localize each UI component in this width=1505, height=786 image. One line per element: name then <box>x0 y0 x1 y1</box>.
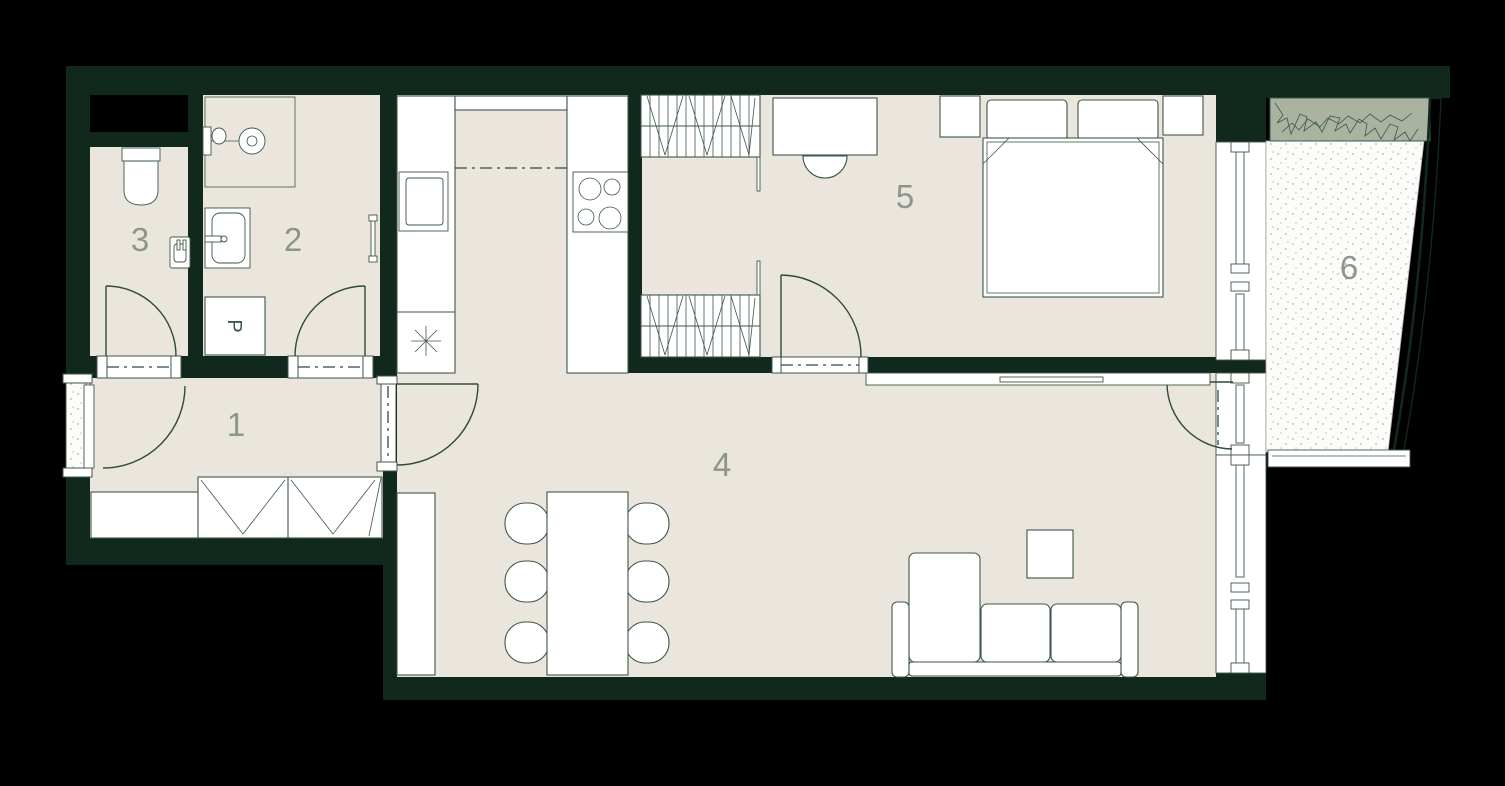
wardrobe-bottom <box>641 295 760 357</box>
entrance-door-leaf <box>84 385 94 468</box>
sofa-seat <box>1051 604 1121 662</box>
cooktop <box>573 172 628 232</box>
living-bottom-wall <box>383 677 1266 700</box>
hall-wardrobe <box>198 477 382 538</box>
left-wall-upper <box>66 95 90 374</box>
dining-table <box>547 492 628 675</box>
nightstand <box>940 96 980 137</box>
balcony-edge <box>1268 450 1410 467</box>
living-room-window <box>1216 455 1266 673</box>
hall-kitchen-wall <box>380 66 397 378</box>
coffee-table <box>1027 530 1073 578</box>
living-left-wall <box>383 470 397 700</box>
living-bottom-right-wall <box>1216 673 1266 700</box>
installation-shaft <box>90 95 188 132</box>
fridge-icon <box>411 326 441 356</box>
hall-bottom-wall <box>66 538 395 565</box>
floor-plan: P <box>0 0 1505 786</box>
balcony-top-wall <box>1216 66 1450 98</box>
bedroom-living-wall <box>642 357 1216 373</box>
hall-cabinet <box>91 492 198 538</box>
room-5-label: 5 <box>896 178 914 215</box>
washing-machine: P <box>205 297 265 355</box>
wardrobe-top <box>641 95 760 157</box>
tv <box>1000 377 1103 382</box>
washing-machine-label: P <box>223 319 245 332</box>
wardrobe-rail <box>757 261 760 295</box>
sofa-armrest <box>892 602 909 677</box>
kitchen-sink-basin <box>406 178 443 225</box>
hand-basin <box>170 237 190 268</box>
nightstand <box>1163 96 1203 135</box>
dining-set <box>505 492 669 675</box>
room-3-label: 3 <box>131 221 149 258</box>
sofa-base <box>909 662 1121 676</box>
kitchen-counter-top <box>455 96 567 110</box>
floor-plan-canvas: P <box>0 0 1505 786</box>
dining-chair <box>505 503 549 544</box>
shower-faucet <box>203 127 211 155</box>
sofa-seat <box>981 604 1050 662</box>
sofa-chaise <box>909 553 980 662</box>
bathroom-sink-tap <box>205 236 221 242</box>
right-pier-top <box>1216 95 1266 142</box>
tall-cabinet <box>397 493 435 675</box>
bedroom-window <box>1216 142 1266 360</box>
room-1-label: 1 <box>227 406 245 443</box>
shower-head-icon <box>239 128 265 154</box>
kitchen-counter-right <box>567 96 628 373</box>
room-4-label: 4 <box>713 446 731 483</box>
dining-chair <box>505 622 549 663</box>
wc-bathroom-divider-wall <box>188 95 203 356</box>
room-6-label: 6 <box>1340 249 1358 286</box>
room-2-label: 2 <box>284 221 302 258</box>
pillow <box>987 100 1067 140</box>
pillow <box>1078 100 1158 140</box>
dining-chair <box>625 622 669 663</box>
toilet <box>122 148 160 205</box>
sofa-armrest <box>1121 602 1138 677</box>
dining-chair <box>505 561 549 602</box>
desk <box>773 98 877 155</box>
shaft-edge-wall <box>90 132 188 147</box>
kitchen-bedroom-wall <box>628 66 642 373</box>
wardrobe-rail <box>757 157 760 191</box>
balcony-planter <box>1270 98 1430 141</box>
dining-chair <box>625 561 669 602</box>
dining-chair <box>625 503 669 544</box>
